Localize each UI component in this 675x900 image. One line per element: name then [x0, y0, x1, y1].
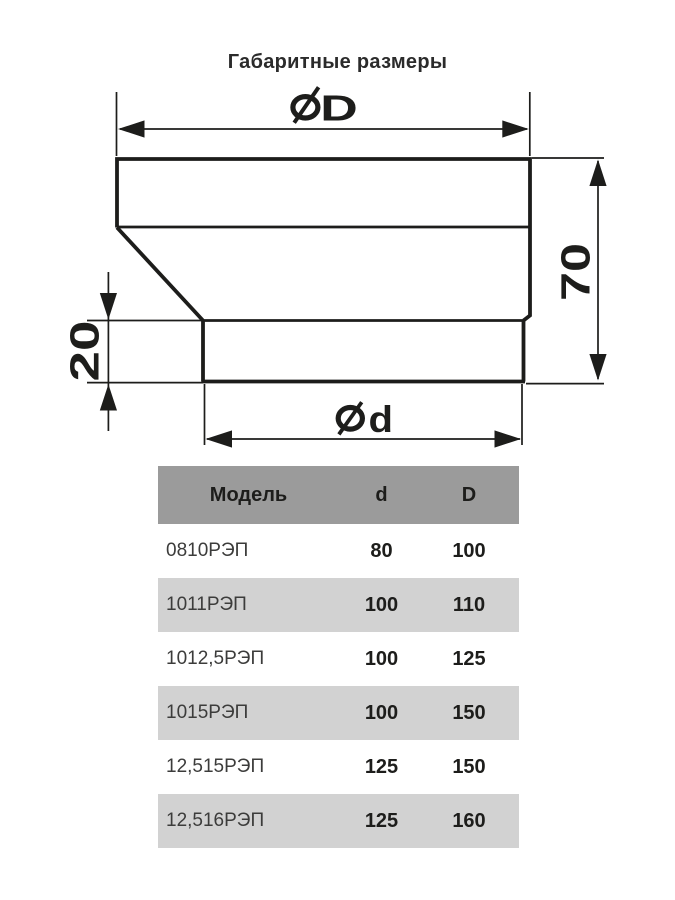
svg-text:70: 70: [552, 243, 598, 301]
svg-text:d: d: [369, 399, 394, 440]
svg-text:20: 20: [62, 321, 108, 382]
svg-text:D: D: [320, 87, 358, 128]
